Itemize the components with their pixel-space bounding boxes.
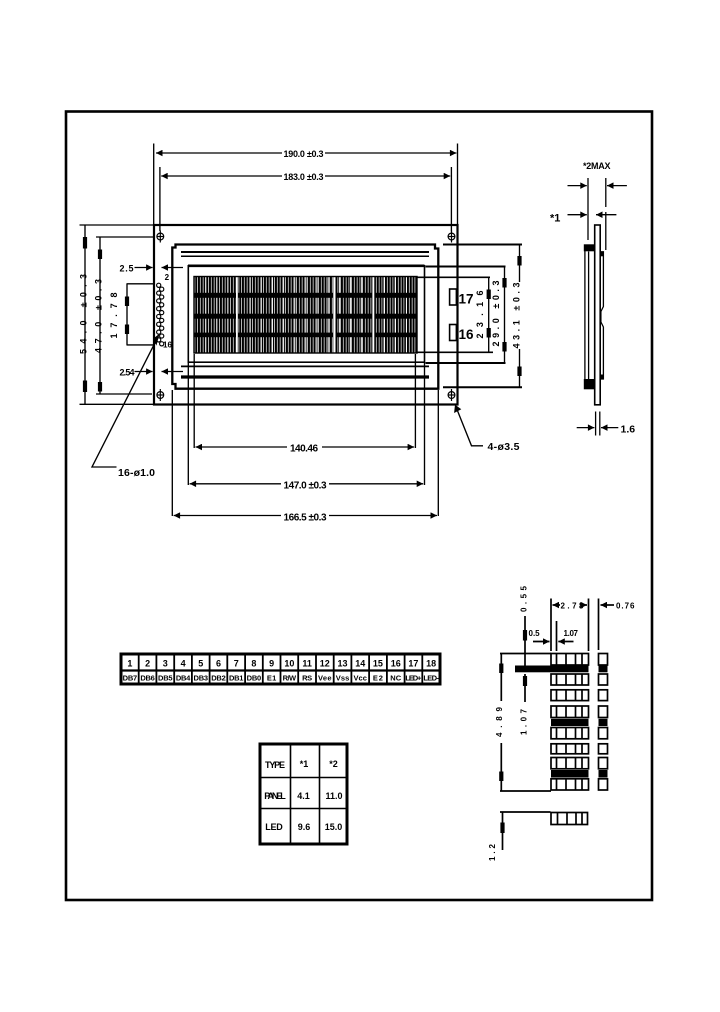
- svg-text:TYPE: TYPE: [265, 760, 285, 770]
- svg-text:183.0 ±0.3: 183.0 ±0.3: [284, 172, 324, 182]
- svg-text:9: 9: [269, 659, 274, 669]
- svg-text:5: 5: [198, 659, 203, 669]
- svg-text:0.55: 0.55: [520, 585, 529, 612]
- svg-text:LED+: LED+: [405, 674, 422, 683]
- svg-text:147.0 ±0.3: 147.0 ±0.3: [284, 480, 327, 491]
- svg-text:*1: *1: [300, 759, 309, 769]
- svg-text:166.5 ±0.3: 166.5 ±0.3: [284, 512, 327, 523]
- svg-text:7: 7: [234, 659, 239, 669]
- svg-text:DB6: DB6: [140, 674, 155, 683]
- svg-text:0.76: 0.76: [616, 602, 635, 611]
- svg-text:0.5: 0.5: [529, 629, 541, 638]
- svg-text:E2: E2: [373, 674, 383, 683]
- svg-text:13: 13: [337, 659, 347, 669]
- svg-text:29.0 ±0.3: 29.0 ±0.3: [491, 281, 501, 347]
- svg-text:14: 14: [355, 659, 365, 669]
- svg-text:15: 15: [373, 659, 383, 669]
- svg-text:1: 1: [127, 659, 132, 669]
- svg-text:16: 16: [459, 327, 475, 342]
- svg-text:*2MAX: *2MAX: [583, 161, 611, 171]
- svg-text:2.78: 2.78: [561, 602, 585, 611]
- svg-text:RS: RS: [302, 674, 312, 683]
- svg-text:DB5: DB5: [158, 674, 173, 683]
- svg-text:3: 3: [163, 659, 168, 669]
- svg-text:11: 11: [302, 659, 312, 669]
- svg-text:DB1: DB1: [229, 674, 244, 683]
- svg-text:18: 18: [426, 659, 436, 669]
- svg-text:PANEL: PANEL: [264, 791, 286, 801]
- svg-text:8: 8: [251, 659, 256, 669]
- svg-text:R/W: R/W: [283, 674, 297, 683]
- svg-text:6: 6: [216, 659, 221, 669]
- svg-text:E1: E1: [267, 674, 277, 683]
- svg-text:Vee: Vee: [318, 674, 332, 683]
- svg-text:2.54: 2.54: [120, 368, 135, 378]
- svg-text:DB4: DB4: [176, 674, 191, 683]
- svg-text:54.0 ±0.3: 54.0 ±0.3: [79, 274, 89, 354]
- svg-text:DB2: DB2: [211, 674, 226, 683]
- svg-text:47.0 ±0.3: 47.0 ±0.3: [94, 279, 104, 353]
- svg-text:LED-: LED-: [423, 674, 439, 683]
- svg-text:16-ø1.0: 16-ø1.0: [118, 467, 155, 479]
- svg-text:1.2: 1.2: [488, 843, 497, 861]
- svg-text:4-ø3.5: 4-ø3.5: [488, 441, 520, 453]
- svg-text:15.0: 15.0: [325, 822, 343, 832]
- svg-text:*1: *1: [550, 213, 560, 225]
- svg-text:10: 10: [284, 659, 294, 669]
- svg-text:11.0: 11.0: [325, 791, 342, 801]
- svg-text:2: 2: [165, 273, 170, 282]
- svg-text:DB7: DB7: [123, 674, 138, 683]
- svg-text:1.6: 1.6: [621, 424, 636, 436]
- svg-text:17: 17: [459, 292, 474, 307]
- svg-text:1.07: 1.07: [520, 708, 529, 735]
- svg-text:190.0 ±0.3: 190.0 ±0.3: [284, 149, 324, 159]
- svg-text:Vss: Vss: [336, 674, 350, 683]
- svg-text:DB3: DB3: [194, 674, 209, 683]
- svg-text:17: 17: [408, 659, 418, 669]
- svg-text:43.1 ±0.3: 43.1 ±0.3: [512, 283, 522, 349]
- svg-text:2.5: 2.5: [120, 264, 134, 274]
- svg-text:LED: LED: [265, 822, 283, 832]
- svg-text:140.46: 140.46: [290, 444, 318, 455]
- svg-text:16: 16: [391, 659, 401, 669]
- svg-text:16: 16: [163, 341, 172, 350]
- svg-text:*2: *2: [329, 759, 338, 769]
- svg-text:12: 12: [320, 659, 330, 669]
- svg-text:2: 2: [145, 659, 150, 669]
- svg-text:9.6: 9.6: [298, 822, 311, 832]
- svg-text:4.1: 4.1: [297, 791, 310, 801]
- svg-text:4: 4: [181, 659, 186, 669]
- svg-text:DB0: DB0: [247, 674, 262, 683]
- svg-text:1.07: 1.07: [564, 629, 579, 638]
- svg-text:Vcc: Vcc: [353, 674, 367, 683]
- svg-text:NC: NC: [390, 674, 402, 683]
